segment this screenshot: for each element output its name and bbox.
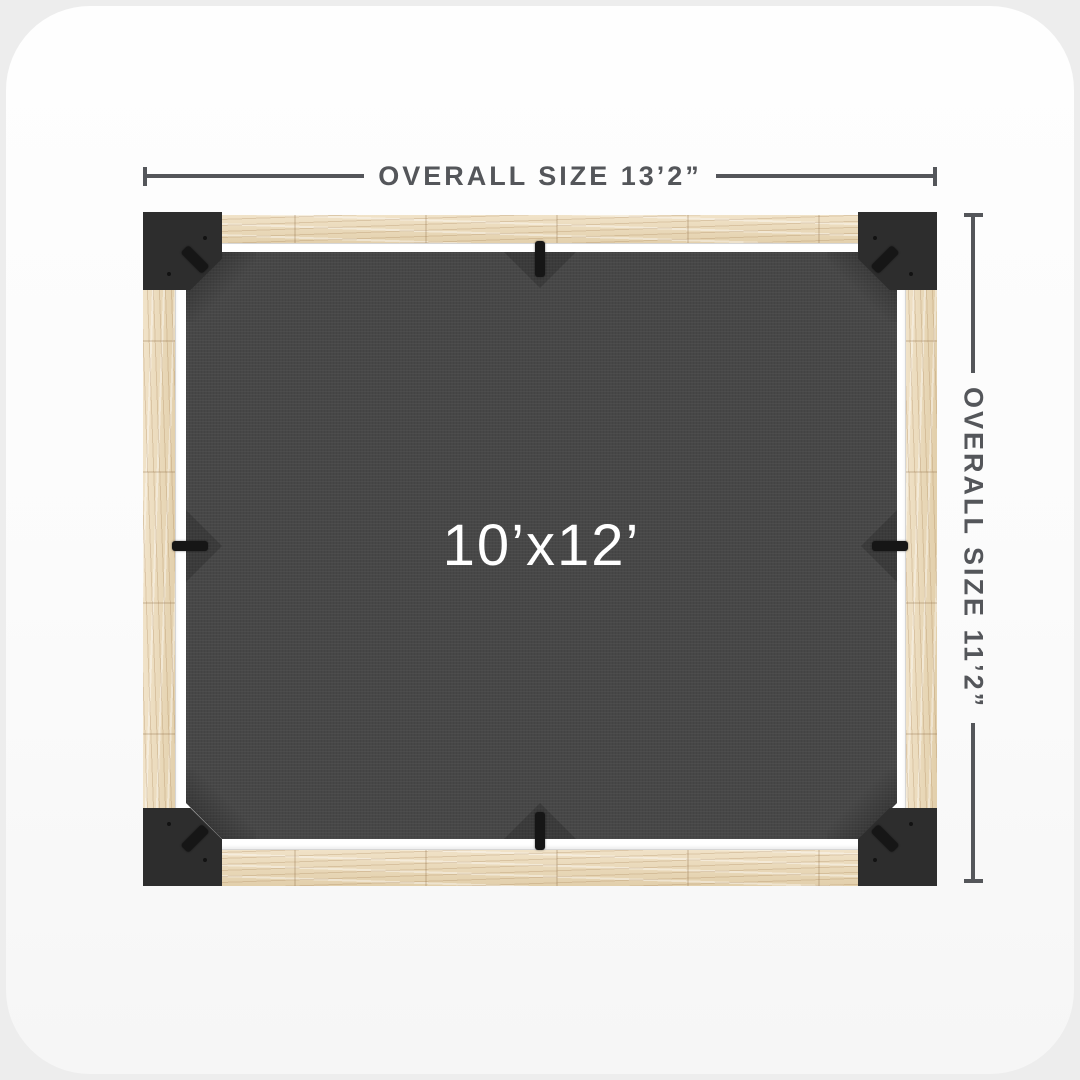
dimension-line-segment	[971, 723, 975, 879]
screw-dot	[909, 272, 913, 276]
canopy-size-label: 10’x12’	[443, 512, 641, 579]
screw-dot	[909, 822, 913, 826]
wood-beam-right	[904, 232, 937, 866]
screw-dot	[203, 858, 207, 862]
dimension-line-segment	[147, 174, 364, 178]
screw-dot	[873, 858, 877, 862]
canopy-mid-strap-top	[535, 241, 545, 277]
dimension-end-tick-bottom	[964, 879, 983, 883]
right-dimension-label: OVERALL SIZE 11’2”	[958, 387, 989, 709]
screw-dot	[873, 236, 877, 240]
dimension-line-segment	[971, 217, 975, 373]
pergola-size-diagram: OVERALL SIZE 13’2” OVERALL SIZE 11’2” 10…	[0, 0, 1080, 1080]
canopy-mid-strap-bottom	[535, 812, 545, 850]
screw-dot	[203, 236, 207, 240]
canopy-mid-strap-left	[172, 541, 208, 551]
screw-dot	[167, 272, 171, 276]
screw-dot	[167, 822, 171, 826]
pergola-top-view: 10’x12’	[143, 212, 937, 886]
wood-beam-bottom	[163, 848, 917, 886]
top-dimension: OVERALL SIZE 13’2”	[143, 158, 937, 194]
right-dimension: OVERALL SIZE 11’2”	[955, 213, 991, 883]
top-dimension-label: OVERALL SIZE 13’2”	[378, 161, 702, 192]
shade-canopy: 10’x12’	[186, 252, 897, 839]
dimension-line-segment	[716, 174, 933, 178]
dimension-end-tick-right	[933, 167, 937, 186]
canopy-mid-strap-right	[872, 541, 908, 551]
